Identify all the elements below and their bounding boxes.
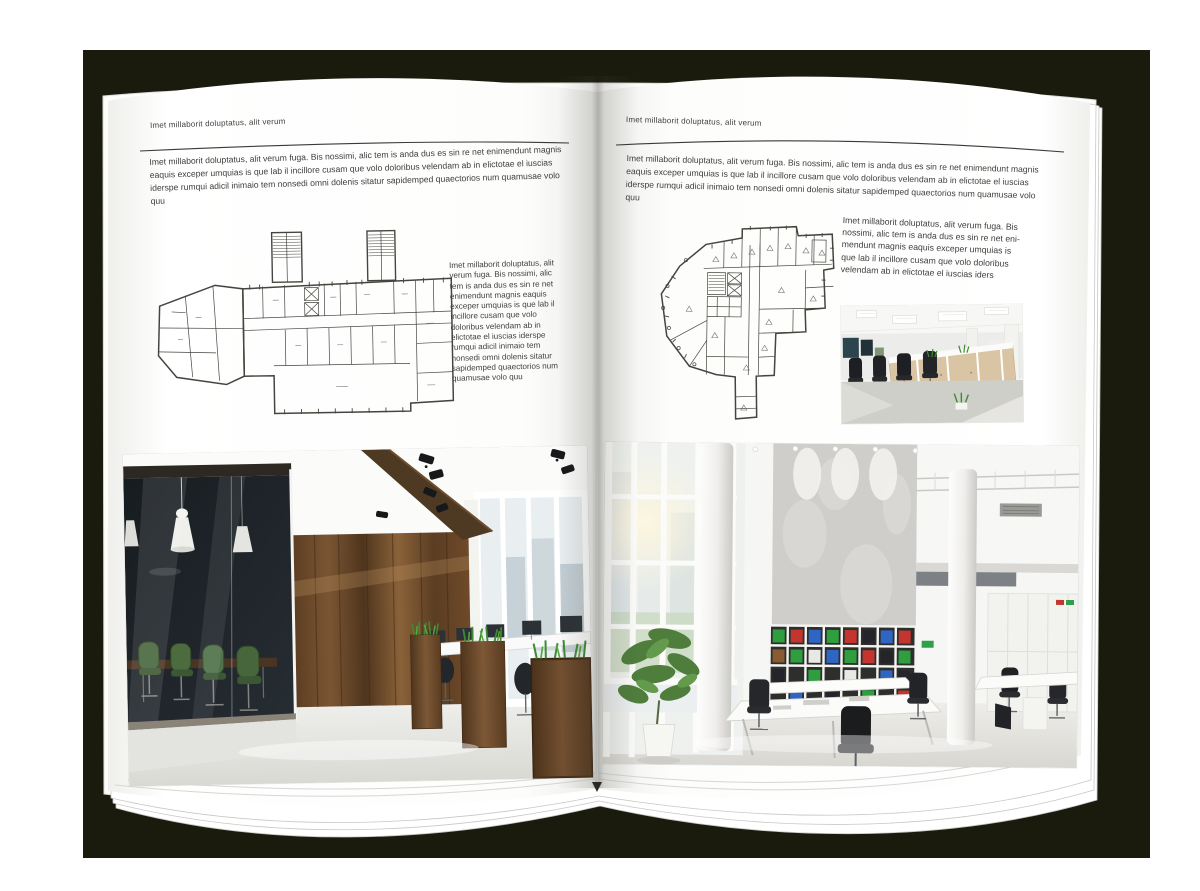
right-page-side-text: Imet millaborit doluptatus, alit verum f… [841, 214, 1025, 282]
plan-label-marks [177, 293, 435, 389]
brochure-mockup: Imet millaborit doluptatus, alit verum I… [0, 0, 1200, 891]
left-page-photo [123, 446, 593, 787]
right-header-rule [615, 128, 1065, 156]
right-floor-plan [644, 216, 847, 427]
right-page-photo [603, 442, 1080, 768]
exit-sign [922, 641, 934, 648]
left-page-side-text: Imet millaborit doluptatus, alit verum f… [449, 258, 564, 384]
first-aid-sticker [1056, 600, 1064, 605]
plan-triangle-marks [685, 242, 825, 411]
waste-bin [995, 703, 1011, 729]
bookshelf [769, 625, 916, 706]
wall-downlights [793, 448, 897, 501]
right-page-small-photo [840, 304, 1023, 424]
left-floor-plan [154, 223, 455, 426]
